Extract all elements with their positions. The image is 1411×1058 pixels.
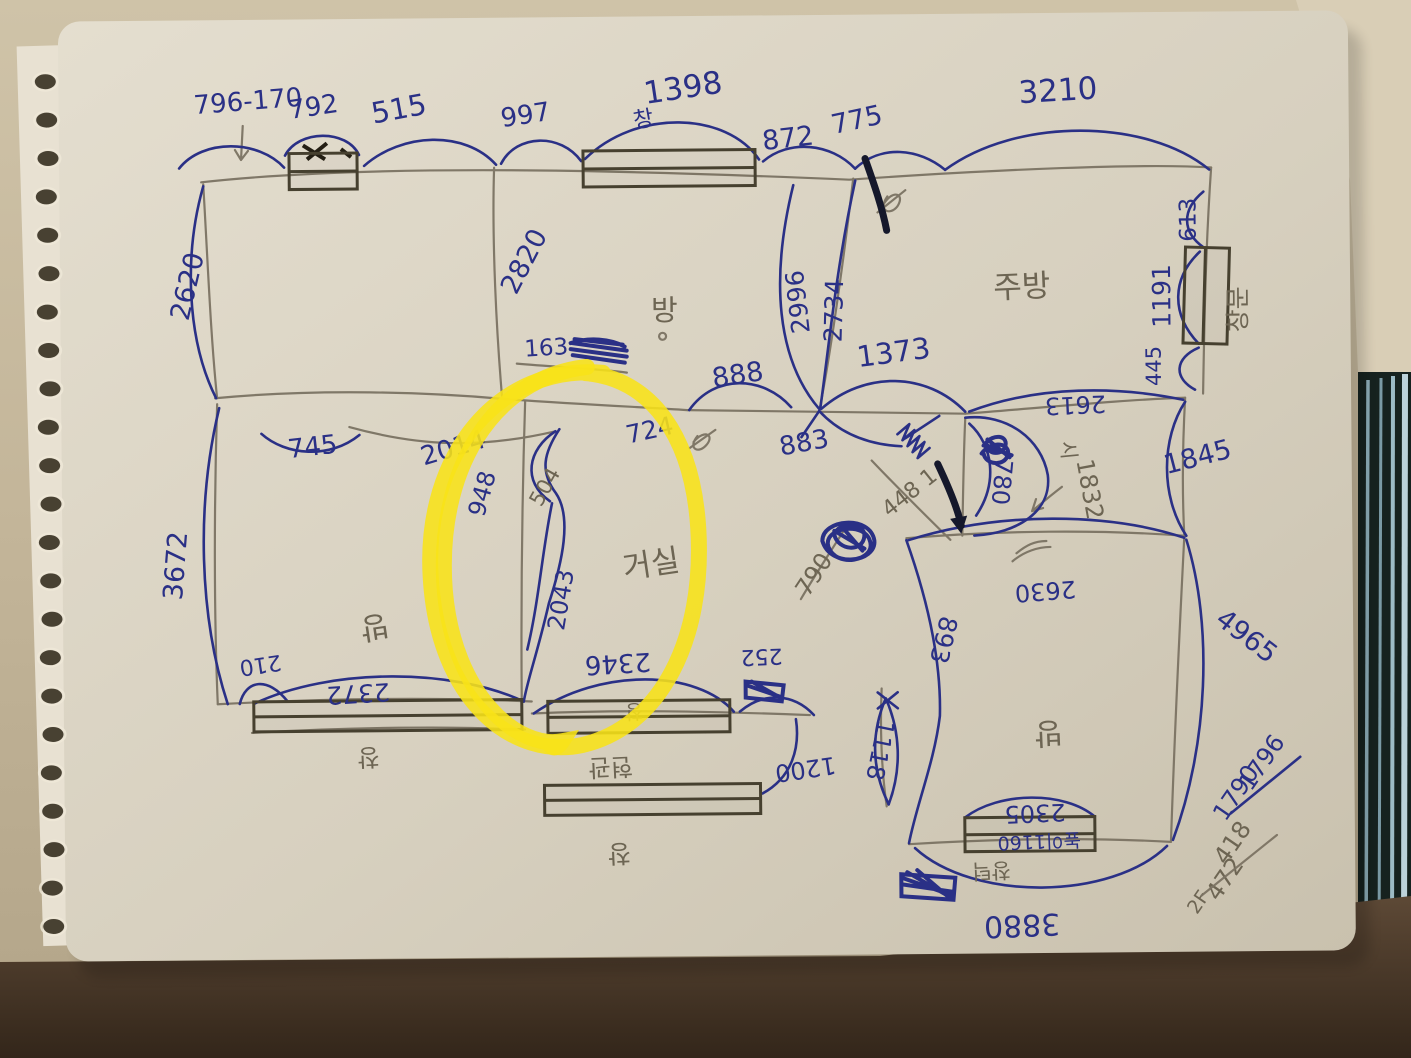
label-door: 현관 xyxy=(588,752,633,782)
dim-2630: 2630 xyxy=(1014,575,1077,608)
dim-2372: 2372 xyxy=(325,677,390,710)
room-label-bottom-right: 방 xyxy=(1034,714,1063,750)
dim-2305: 2305 xyxy=(1004,798,1066,829)
label-window-bottom-left: 창 xyxy=(357,742,380,771)
dim-2613: 2613 xyxy=(1044,389,1106,420)
dim-3880: 3880 xyxy=(983,906,1061,944)
dim-252: 252 xyxy=(740,643,783,670)
photo-of-floorplan-sketch: 796-170 792 515 997 창 1398 872 775 3210 … xyxy=(0,0,1411,1058)
dim-163-scribbled: 163 xyxy=(524,334,569,363)
dim-3672: 3672 xyxy=(158,530,194,601)
note-height-1160: 높이1160 xyxy=(997,828,1081,854)
label-window-right: 창문 xyxy=(1223,286,1252,332)
room-label-bottom-left: 방 xyxy=(358,607,390,646)
note-sill: 창턱 xyxy=(972,858,1012,884)
dim-2346: 2346 xyxy=(584,646,652,680)
window-symbol xyxy=(544,783,760,815)
notebook: 796-170 792 515 997 창 1398 872 775 3210 … xyxy=(16,10,1370,978)
dim-1191: 1191 xyxy=(1147,264,1177,328)
dim-2734: 2734 xyxy=(819,278,850,342)
dim-872: 872 xyxy=(761,120,816,157)
room-label-kitchen: 주방 xyxy=(993,268,1052,306)
sketch-canvas: 796-170 792 515 997 창 1398 872 775 3210 … xyxy=(0,0,1411,1058)
dim-3210: 3210 xyxy=(1017,70,1098,111)
note-si: 시 xyxy=(1056,440,1082,461)
dim-445: 445 xyxy=(1142,346,1166,386)
room-label-top-middle: 방 xyxy=(651,293,678,327)
dim-780: 780 xyxy=(986,458,1018,506)
dim-613: 613 xyxy=(1175,198,1201,242)
window-symbol xyxy=(289,153,357,190)
label-window-mid-lower: 창 xyxy=(607,838,631,868)
window-symbol xyxy=(583,150,755,187)
dim-745: 745 xyxy=(286,430,339,465)
